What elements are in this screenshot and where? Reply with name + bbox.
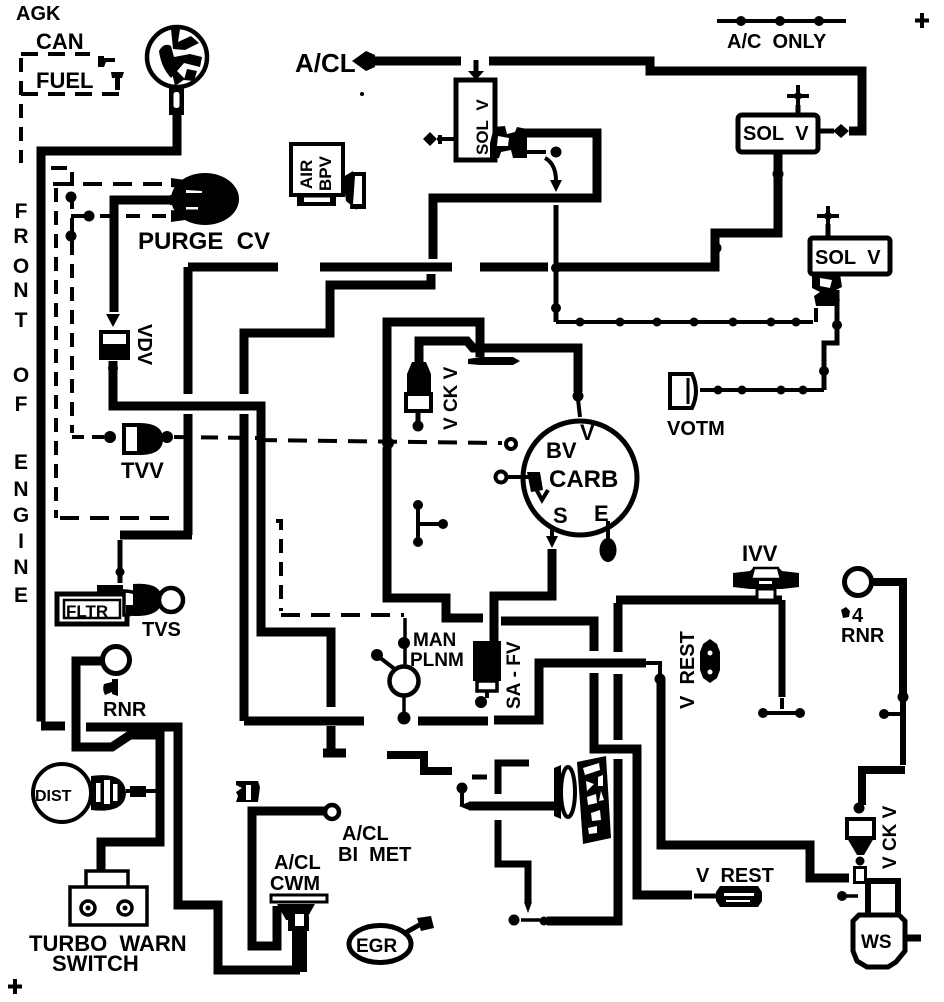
svg-text:VOTM: VOTM [667, 418, 725, 440]
svg-text:FUEL: FUEL [36, 68, 93, 93]
svg-text:I: I [18, 530, 24, 553]
svg-text:BV: BV [546, 438, 577, 463]
svg-text:WS: WS [861, 932, 892, 953]
svg-text:F: F [15, 200, 28, 223]
svg-text:PLNM: PLNM [410, 650, 464, 671]
svg-text:N: N [13, 478, 28, 501]
svg-text:RNR: RNR [841, 625, 885, 647]
svg-text:R: R [13, 225, 28, 248]
svg-text:EGR: EGR [356, 936, 397, 957]
svg-text:A/CL: A/CL [342, 823, 389, 845]
svg-text:E: E [14, 451, 28, 474]
svg-text:PURGE CV: PURGE CV [138, 228, 270, 255]
svg-text:A/CL: A/CL [295, 48, 356, 78]
svg-text:A/C ONLY: A/C ONLY [727, 31, 827, 53]
svg-text:CARB: CARB [549, 466, 618, 493]
svg-text:V REST: V REST [677, 631, 699, 709]
svg-text:V REST: V REST [696, 865, 774, 887]
svg-text:N: N [13, 556, 28, 579]
svg-text:T: T [15, 309, 28, 332]
svg-text:TVV: TVV [121, 458, 164, 483]
svg-text:SWITCH: SWITCH [52, 951, 139, 976]
svg-text:CAN: CAN [36, 29, 84, 54]
svg-text:SOL V: SOL V [743, 123, 809, 145]
svg-text:IVV: IVV [742, 541, 778, 566]
svg-text:BI MET: BI MET [338, 844, 411, 866]
svg-text:SOL V: SOL V [815, 247, 881, 269]
svg-text:TVS: TVS [142, 619, 181, 641]
svg-text:CWM: CWM [270, 873, 320, 895]
svg-text:S: S [553, 503, 568, 528]
svg-text:4: 4 [852, 605, 864, 627]
svg-text:G: G [13, 504, 29, 527]
svg-text:DIST: DIST [35, 788, 72, 805]
svg-text:AGK: AGK [16, 3, 61, 25]
svg-text:BPV: BPV [316, 155, 335, 191]
svg-text:VDV: VDV [133, 324, 155, 366]
svg-text:N: N [13, 279, 28, 302]
svg-text:RNR: RNR [103, 699, 147, 721]
svg-text:SOL V: SOL V [473, 99, 492, 155]
svg-text:A/CL: A/CL [274, 852, 321, 874]
svg-text:F: F [15, 393, 28, 416]
svg-text:FLTR: FLTR [66, 602, 108, 621]
svg-text:O: O [13, 364, 29, 387]
svg-text:SA - FV: SA - FV [504, 641, 525, 709]
svg-text:MAN: MAN [413, 630, 456, 651]
svg-text:AIR: AIR [297, 160, 316, 189]
svg-text:V: V [580, 420, 595, 445]
svg-text:E: E [594, 501, 609, 526]
svg-text:O: O [13, 255, 29, 278]
svg-text:E: E [14, 584, 28, 607]
svg-text:V CK V: V CK V [441, 366, 462, 430]
svg-text:V CK V: V CK V [880, 805, 901, 869]
